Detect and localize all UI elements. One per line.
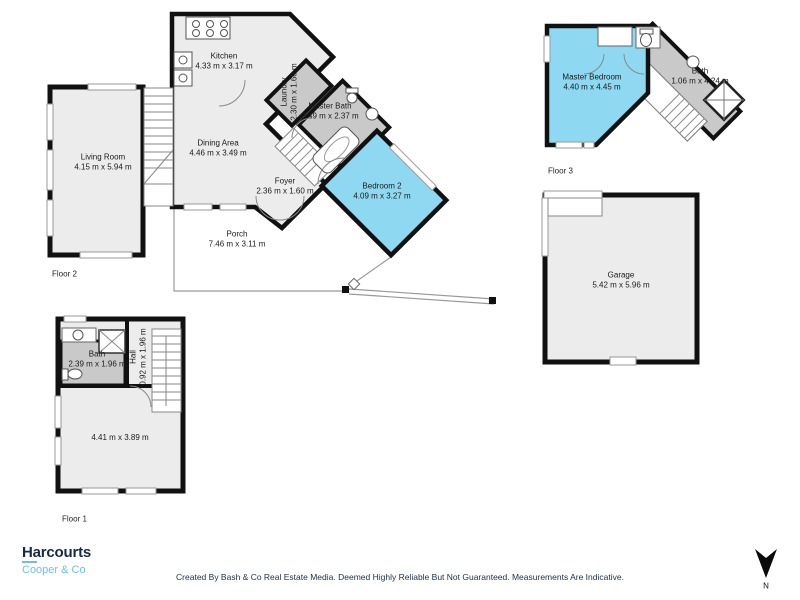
stairs — [152, 329, 181, 412]
room-dims: 4.33 m x 3.17 m — [195, 62, 252, 72]
room-name: Laundry — [280, 63, 290, 120]
dining-area-label: Dining Area 4.46 m x 3.49 m — [189, 139, 246, 160]
room-dims: 4.09 m x 3.27 m — [353, 192, 410, 202]
compass-north-label: N — [763, 582, 769, 591]
stove-icon — [186, 17, 230, 39]
floor3-label: Floor 3 — [548, 167, 573, 176]
room-name: Bedroom 2 — [353, 182, 410, 192]
porch-post — [489, 297, 496, 304]
room-name: Garage — [592, 271, 649, 281]
room-floor1-label: 4.41 m x 3.89 m — [91, 433, 148, 443]
foyer-label: Foyer 2.36 m x 1.60 m — [256, 177, 313, 198]
room-dims: 4.41 m x 3.89 m — [91, 433, 148, 443]
master-bedroom-label: Master Bedroom 4.40 m x 4.45 m — [562, 73, 621, 94]
wardrobe — [598, 27, 632, 46]
laundry-label: Laundry 2.30 m x 1.60 m — [280, 63, 301, 120]
room-dims: 0.92 m x 1.96 m — [139, 328, 149, 385]
room-name: Kitchen — [195, 52, 252, 62]
porch-label: Porch 7.46 m x 3.11 m — [209, 230, 266, 251]
floor2-label: Floor 2 — [52, 270, 77, 279]
master-bath-label: Master Bath 2.49 m x 2.37 m — [301, 102, 358, 123]
porch-post — [342, 286, 349, 293]
room-dims: 4.40 m x 4.45 m — [562, 83, 621, 93]
room-name: Hall — [129, 328, 139, 385]
hall-label: Hall 0.92 m x 1.96 m — [129, 328, 150, 385]
floorplan-page: Living Room 4.15 m x 5.94 m Kitchen 4.33… — [0, 0, 800, 600]
logo-underline — [22, 561, 37, 563]
room-dims: 4.15 m x 5.94 m — [74, 163, 131, 173]
room-dims: 4.46 m x 3.49 m — [189, 149, 246, 159]
floorplan-canvas — [0, 0, 800, 600]
room-dims: 7.46 m x 3.11 m — [209, 240, 266, 250]
room-dims: 1.06 m x 4.24 m — [671, 77, 728, 87]
bedroom2-label: Bedroom 2 4.09 m x 3.27 m — [353, 182, 410, 203]
garage-label: Garage 5.42 m x 5.96 m — [592, 271, 649, 292]
room-name: Foyer — [256, 177, 313, 187]
room-name: Living Room — [74, 153, 131, 163]
room-dims: 2.30 m x 1.60 m — [290, 63, 300, 120]
room-name: Porch — [209, 230, 266, 240]
floor1-plan — [55, 316, 183, 494]
sink-icon — [62, 328, 96, 342]
room-name: Master Bedroom — [562, 73, 621, 83]
floor1-label: Floor 1 — [62, 515, 87, 524]
agency-name: Harcourts — [22, 545, 91, 560]
room-name: Master Bath — [301, 102, 358, 112]
room-dims: 2.36 m x 1.60 m — [256, 187, 313, 197]
toilet-icon — [62, 369, 82, 380]
garage-storage-nook — [548, 198, 602, 216]
room-name: Bath — [671, 67, 728, 77]
footer-disclaimer: Created By Bash & Co Real Estate Media. … — [0, 572, 800, 582]
room-name: Bath — [68, 350, 125, 360]
room-dims: 5.42 m x 5.96 m — [592, 281, 649, 291]
toilet-icon — [636, 27, 660, 48]
room-dims: 2.39 m x 1.96 m — [68, 360, 125, 370]
room-dims: 2.49 m x 2.37 m — [301, 112, 358, 122]
kitchen-label: Kitchen 4.33 m x 3.17 m — [195, 52, 252, 73]
garage-door-gap — [610, 357, 636, 365]
stairs — [144, 88, 173, 206]
living-room-label: Living Room 4.15 m x 5.94 m — [74, 153, 131, 174]
bath-floor3-label: Bath 1.06 m x 4.24 m — [671, 67, 728, 88]
sink-icon — [366, 108, 378, 120]
room-name: Dining Area — [189, 139, 246, 149]
porch-outline — [174, 209, 494, 304]
bath-floor1-label: Bath 2.39 m x 1.96 m — [68, 350, 125, 371]
